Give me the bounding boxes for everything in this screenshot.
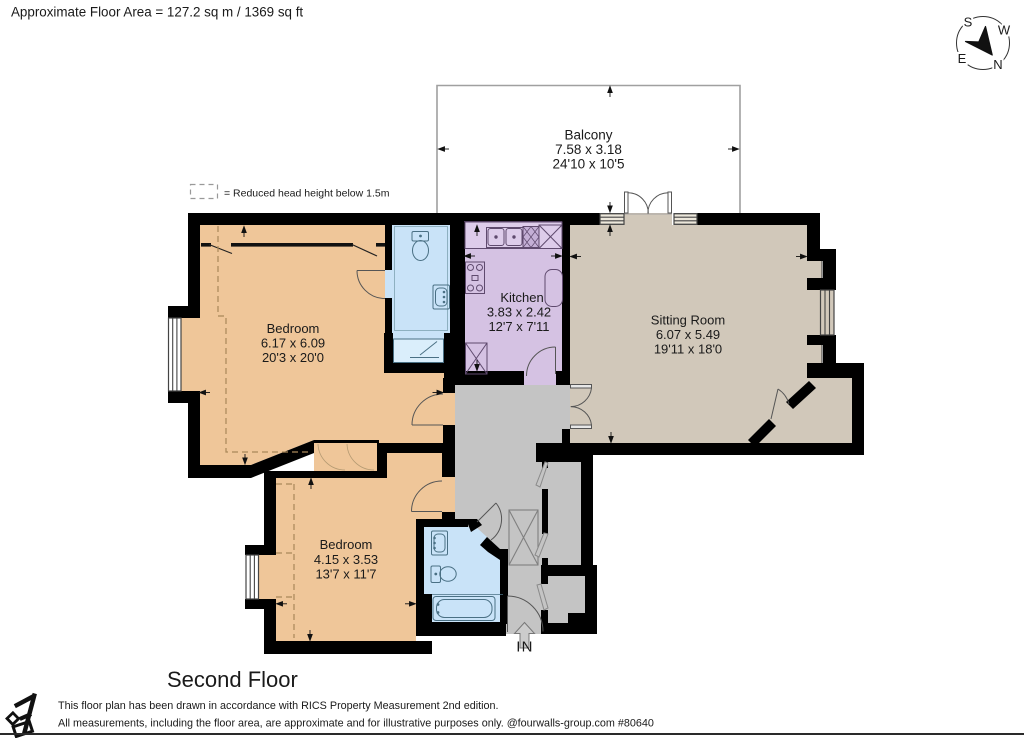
svg-text:S: S: [964, 15, 973, 30]
svg-text:This floor plan has been drawn: This floor plan has been drawn in accord…: [58, 700, 499, 712]
svg-text:Sitting Room: Sitting Room: [651, 313, 725, 328]
svg-text:12'7 x 7'11: 12'7 x 7'11: [488, 319, 549, 334]
svg-text:IN: IN: [516, 639, 533, 656]
svg-text:Balcony: Balcony: [564, 128, 612, 143]
svg-text:All measurements, including th: All measurements, including the floor ar…: [58, 718, 654, 730]
svg-text:= Reduced head height below 1.: = Reduced head height below 1.5m: [224, 188, 390, 200]
svg-text:6.17 x 6.09: 6.17 x 6.09: [261, 336, 325, 351]
svg-text:6.07 x 5.49: 6.07 x 5.49: [656, 327, 720, 342]
svg-text:Bedroom: Bedroom: [320, 537, 373, 552]
svg-text:Kitchen: Kitchen: [500, 290, 543, 305]
svg-text:20'3 x 20'0: 20'3 x 20'0: [262, 350, 324, 365]
svg-text:7.58 x 3.18: 7.58 x 3.18: [555, 142, 622, 157]
svg-text:19'11 x 18'0: 19'11 x 18'0: [654, 342, 722, 357]
svg-text:Bedroom: Bedroom: [267, 321, 320, 336]
svg-text:E: E: [958, 51, 967, 66]
svg-text:4.15 x 3.53: 4.15 x 3.53: [314, 552, 378, 567]
svg-text:13'7 x 11'7: 13'7 x 11'7: [315, 567, 376, 582]
svg-text:Approximate Floor Area = 127.2: Approximate Floor Area = 127.2 sq m / 13…: [11, 5, 303, 20]
svg-text:24'10 x 10'5: 24'10 x 10'5: [553, 157, 625, 172]
svg-text:3.83 x 2.42: 3.83 x 2.42: [487, 305, 551, 320]
svg-text:N: N: [993, 57, 1002, 72]
svg-text:Second Floor: Second Floor: [167, 667, 298, 692]
svg-text:W: W: [998, 23, 1011, 38]
